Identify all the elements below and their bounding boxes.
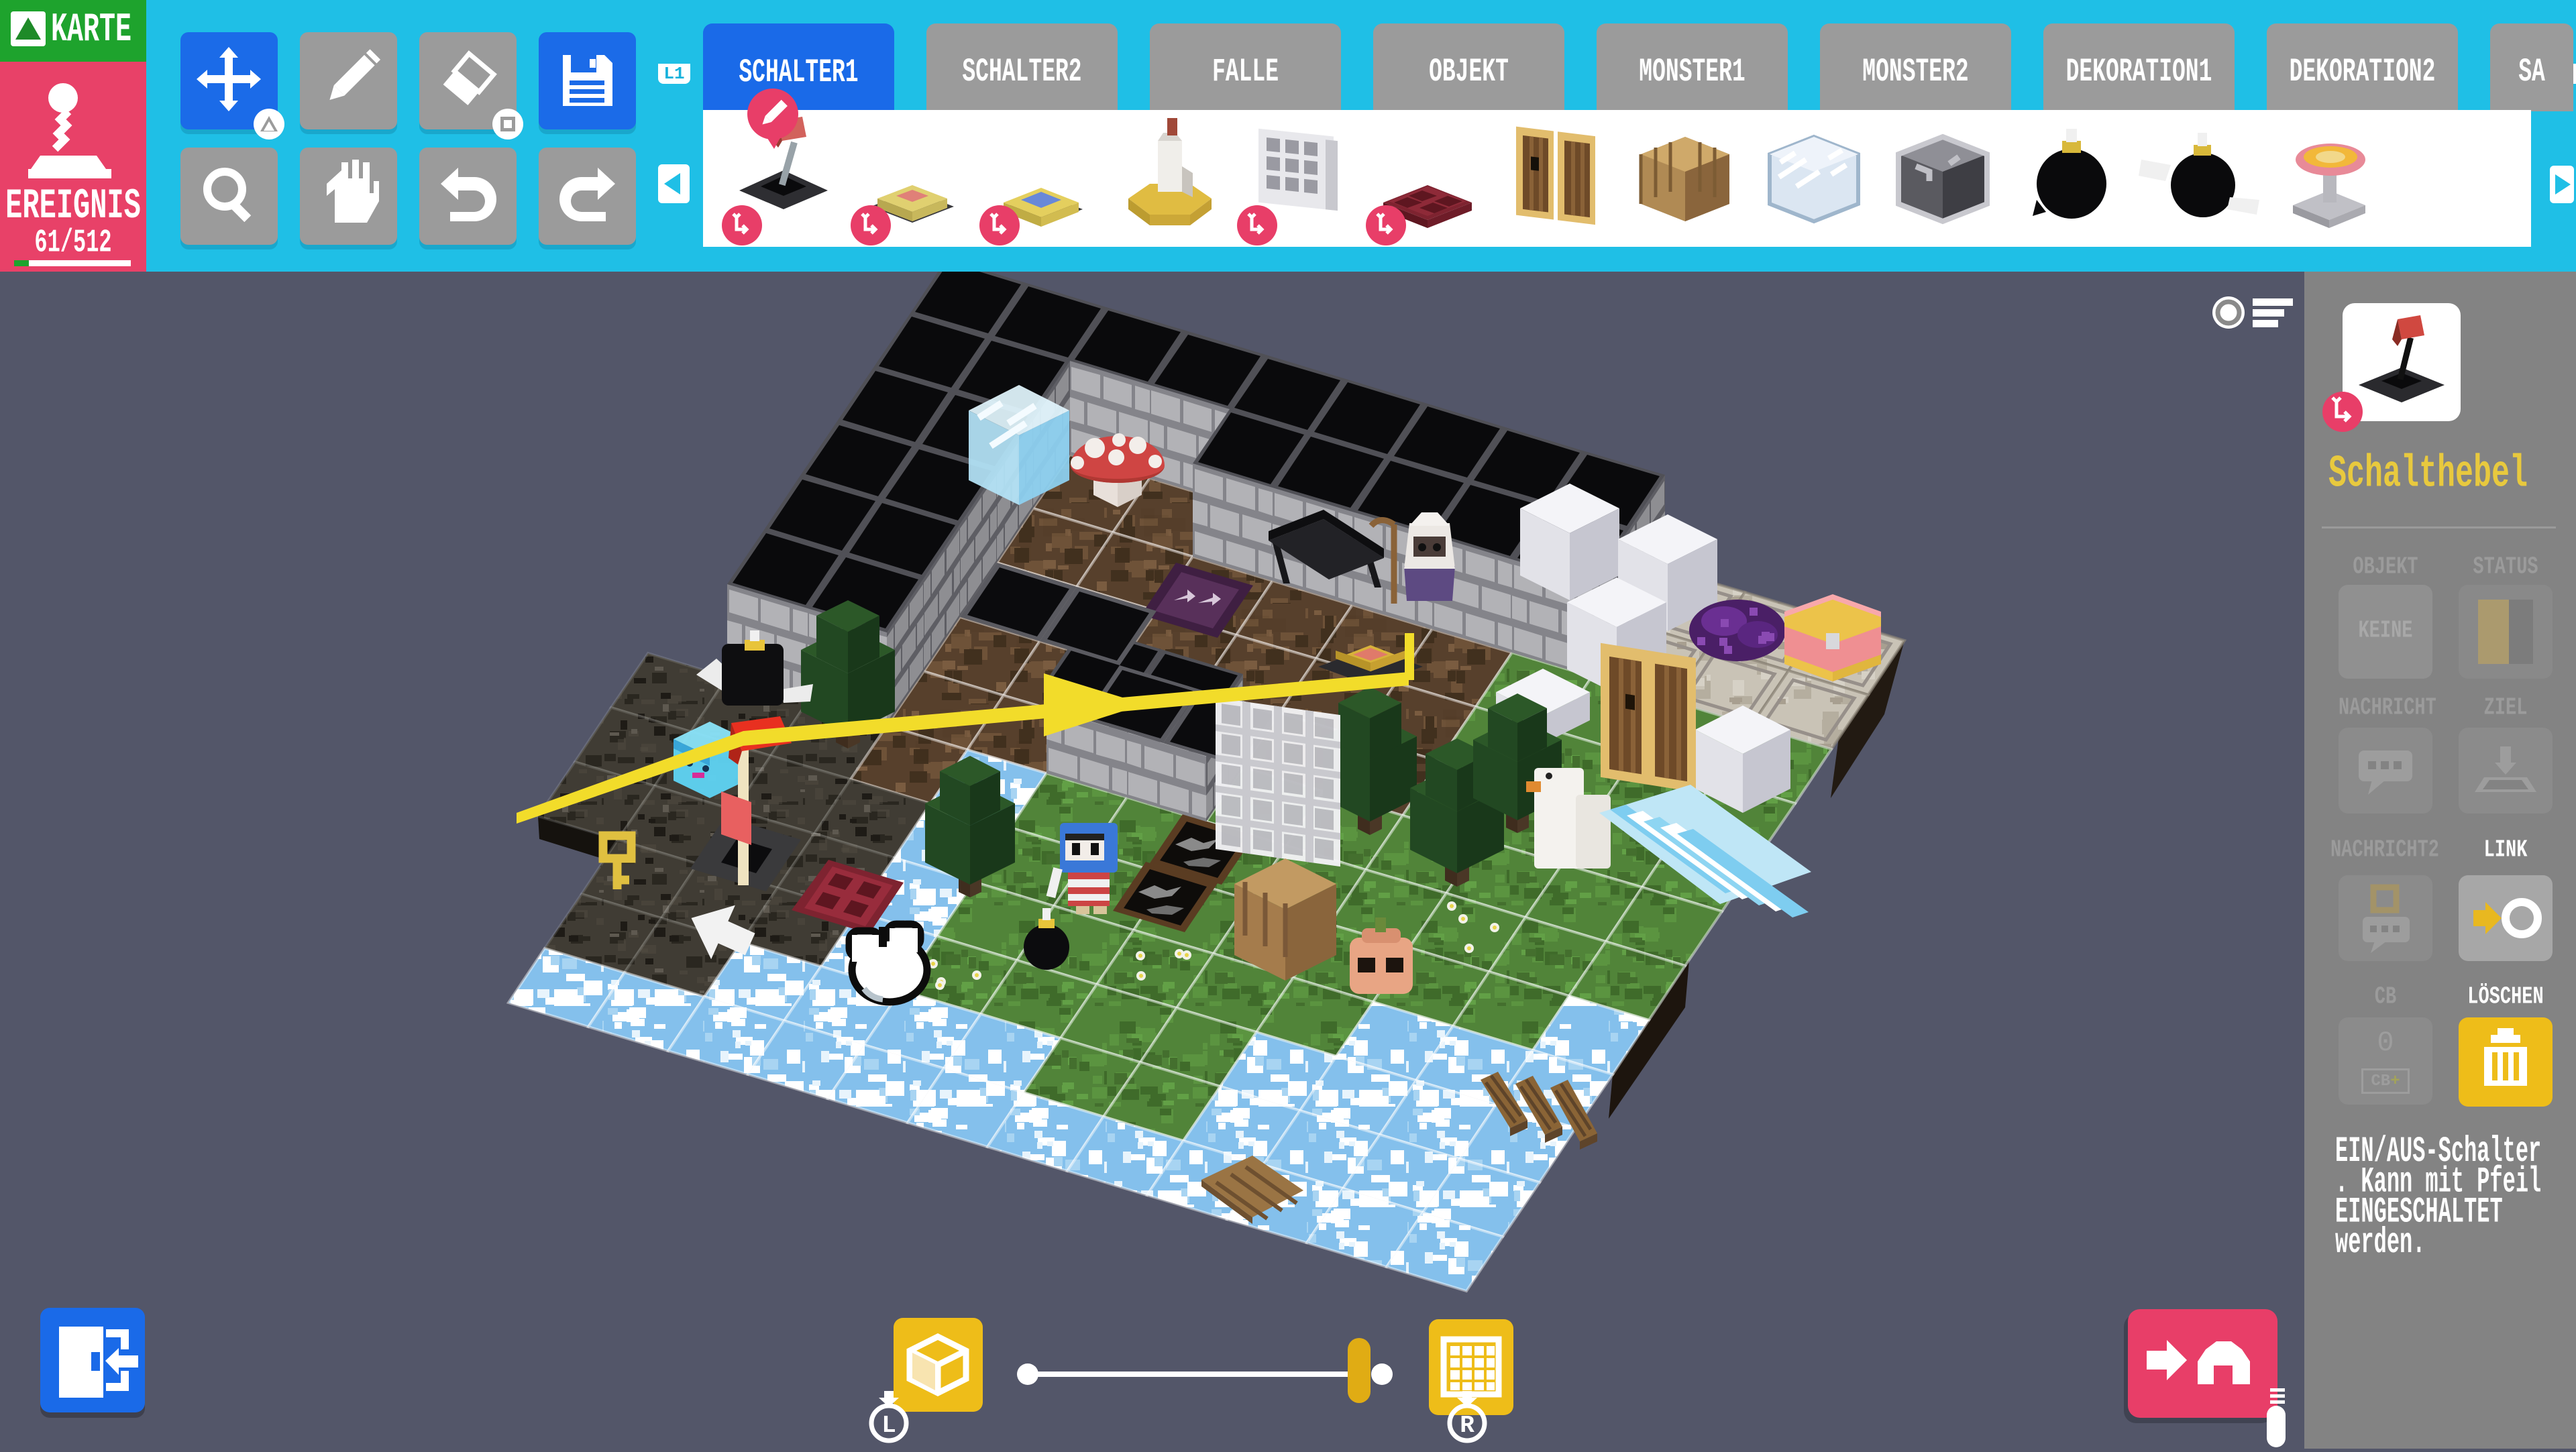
svg-text:R: R — [1460, 1412, 1474, 1439]
svg-text:L: L — [881, 1412, 896, 1439]
